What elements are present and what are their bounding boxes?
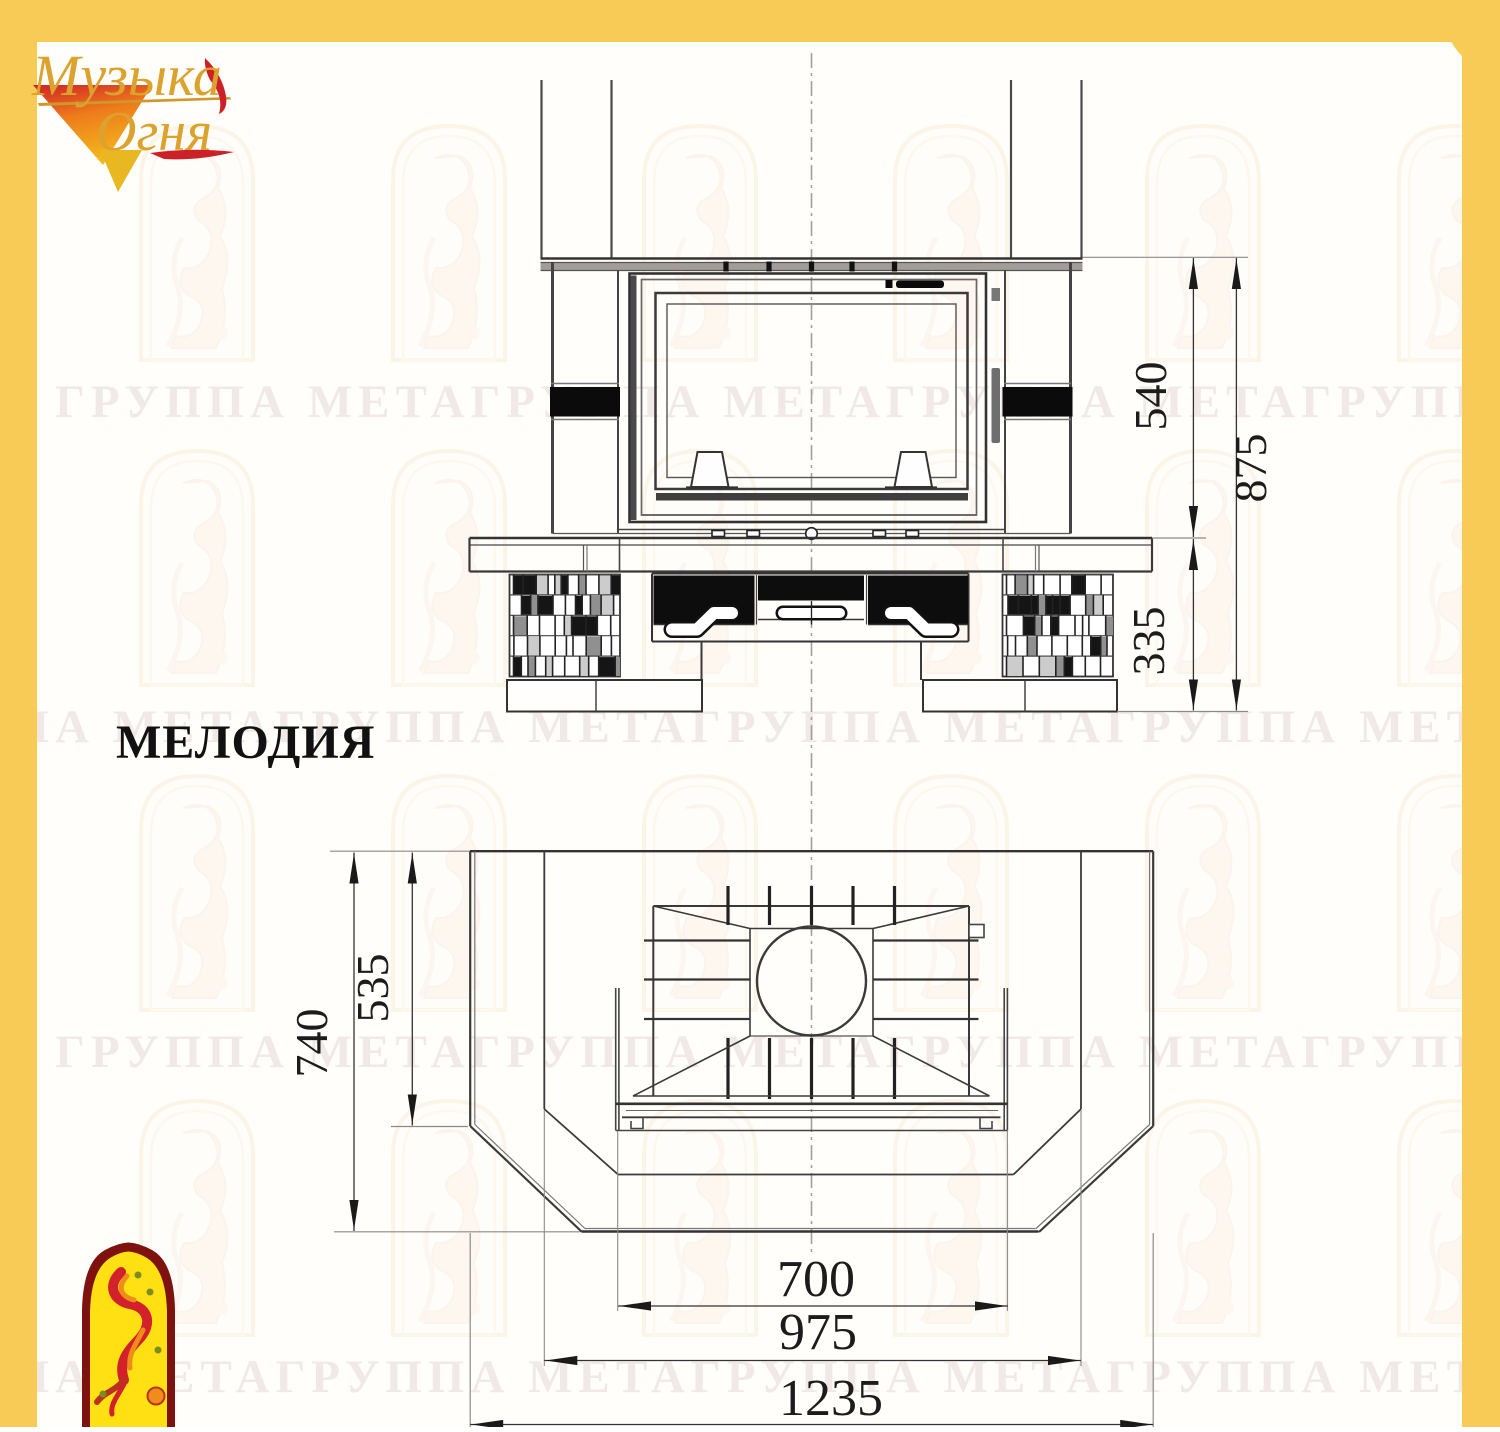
- svg-text:ГРУППА МЕТАГРУППА МЕТАГРУППА М: ГРУППА МЕТАГРУППА МЕТАГРУППА МЕТАГРУППА …: [55, 1026, 1500, 1078]
- svg-text:335: 335: [1123, 607, 1174, 676]
- svg-text:МЕЛОДИЯ: МЕЛОДИЯ: [116, 716, 375, 769]
- svg-text:740: 740: [286, 1009, 337, 1078]
- svg-text:700: 700: [777, 1251, 855, 1308]
- svg-text:Музыка: Музыка: [31, 43, 222, 108]
- svg-text:ГРУППА МЕТАГРУППА МЕТАГРУППА М: ГРУППА МЕТАГРУППА МЕТАГРУППА МЕТАГРУППА …: [55, 376, 1500, 428]
- svg-text:875: 875: [1225, 434, 1276, 503]
- svg-text:ГРУППА МЕТАГРУППА МЕТАГРУППА М: ГРУППА МЕТАГРУППА МЕТАГРУППА МЕТАГРУППА …: [0, 1351, 1500, 1403]
- svg-text:975: 975: [779, 1304, 857, 1361]
- svg-text:1235: 1235: [779, 1370, 883, 1427]
- svg-text:540: 540: [1125, 362, 1176, 431]
- svg-text:Огня: Огня: [96, 101, 212, 163]
- svg-text:535: 535: [347, 954, 398, 1023]
